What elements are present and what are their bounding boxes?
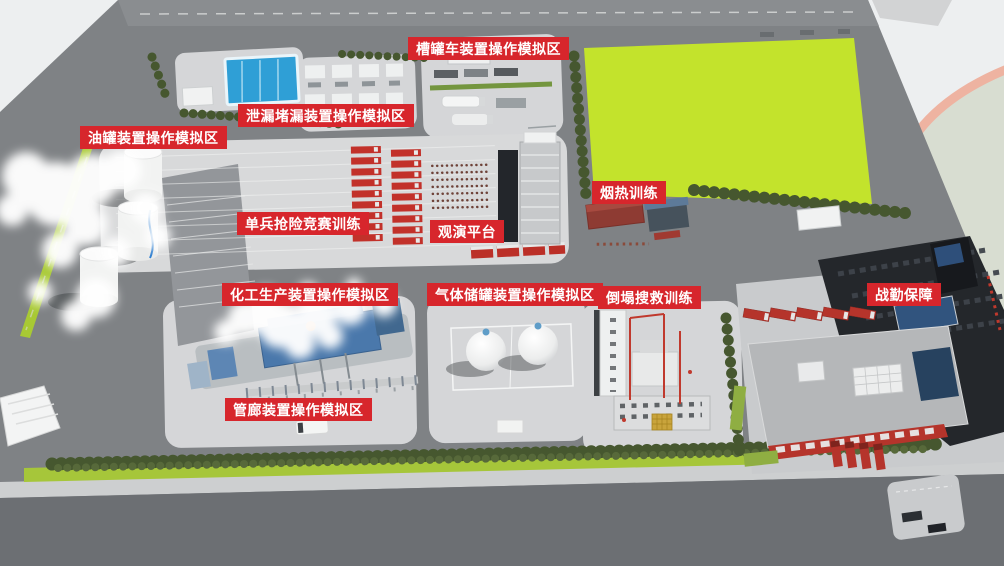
zone-label-combat-support: 战勤保障 xyxy=(867,283,941,306)
zone-label-collapse-rescue: 倒塌搜救训练 xyxy=(598,286,701,309)
green-field xyxy=(584,38,872,204)
zone-label-chemical-production: 化工生产装置操作模拟区 xyxy=(222,283,398,306)
field-canopy xyxy=(797,206,841,230)
zone-label-smoke-heat: 烟热训练 xyxy=(592,181,666,204)
zone-label-individual-rescue: 单兵抢险竞赛训练 xyxy=(237,212,369,235)
zone-label-leak-plugging: 泄漏堵漏装置操作模拟区 xyxy=(238,104,414,127)
zone-label-tank-truck: 槽罐车装置操作模拟区 xyxy=(408,37,569,60)
zone-label-oil-tank: 油罐装置操作模拟区 xyxy=(80,126,227,149)
zone-label-viewing-platform: 观演平台 xyxy=(430,220,504,243)
facility-map: 槽罐车装置操作模拟区 泄漏堵漏装置操作模拟区 油罐装置操作模拟区 单兵抢险竞赛训… xyxy=(0,0,1004,566)
zone-label-pipe-gallery: 管廊装置操作模拟区 xyxy=(225,398,372,421)
zone-label-gas-storage: 气体储罐装置操作模拟区 xyxy=(427,283,603,306)
